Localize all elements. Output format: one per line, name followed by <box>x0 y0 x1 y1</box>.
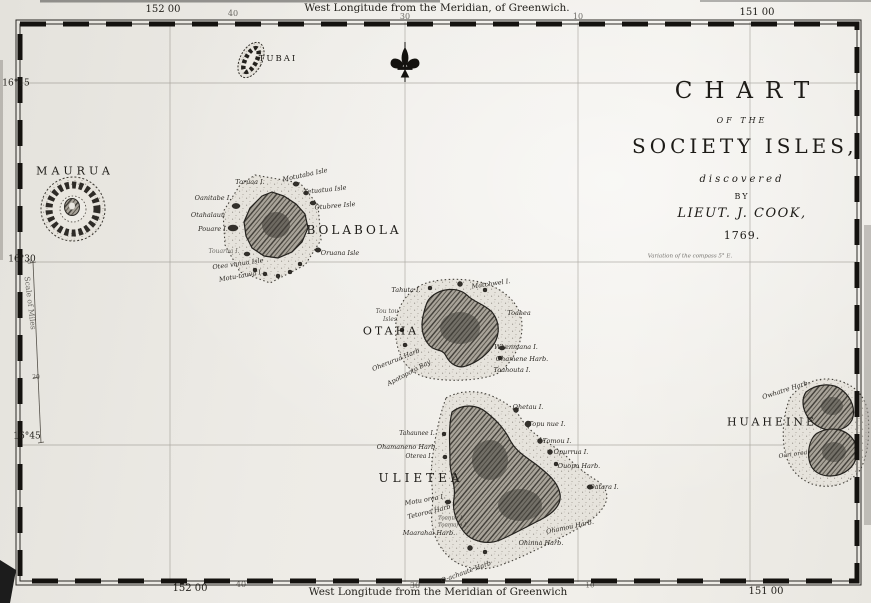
chart-title-line: LIEUT. J. COOK, <box>632 206 852 221</box>
chart-title-line: BY <box>632 192 852 201</box>
chart-title-line: discovered <box>632 174 852 185</box>
chart-title-line: 1769. <box>632 229 852 242</box>
fleur-de-lis-north-icon <box>391 42 419 82</box>
island-tubai <box>233 38 270 82</box>
title-cartouche: CHART OF THE SOCIETY ISLES, discovered B… <box>632 78 852 242</box>
island-bolabola <box>223 175 321 283</box>
chart-title-line: SOCIETY ISLES, <box>632 134 852 158</box>
island-maurua <box>41 177 105 241</box>
scale-of-miles-rule <box>30 262 44 443</box>
map-sheet: CHART OF THE SOCIETY ISLES, discovered B… <box>0 0 871 603</box>
island-ulietea <box>431 392 606 569</box>
chart-title-line: CHART <box>632 78 852 104</box>
island-otaha <box>396 279 522 380</box>
chart-title-line: OF THE <box>632 116 852 125</box>
